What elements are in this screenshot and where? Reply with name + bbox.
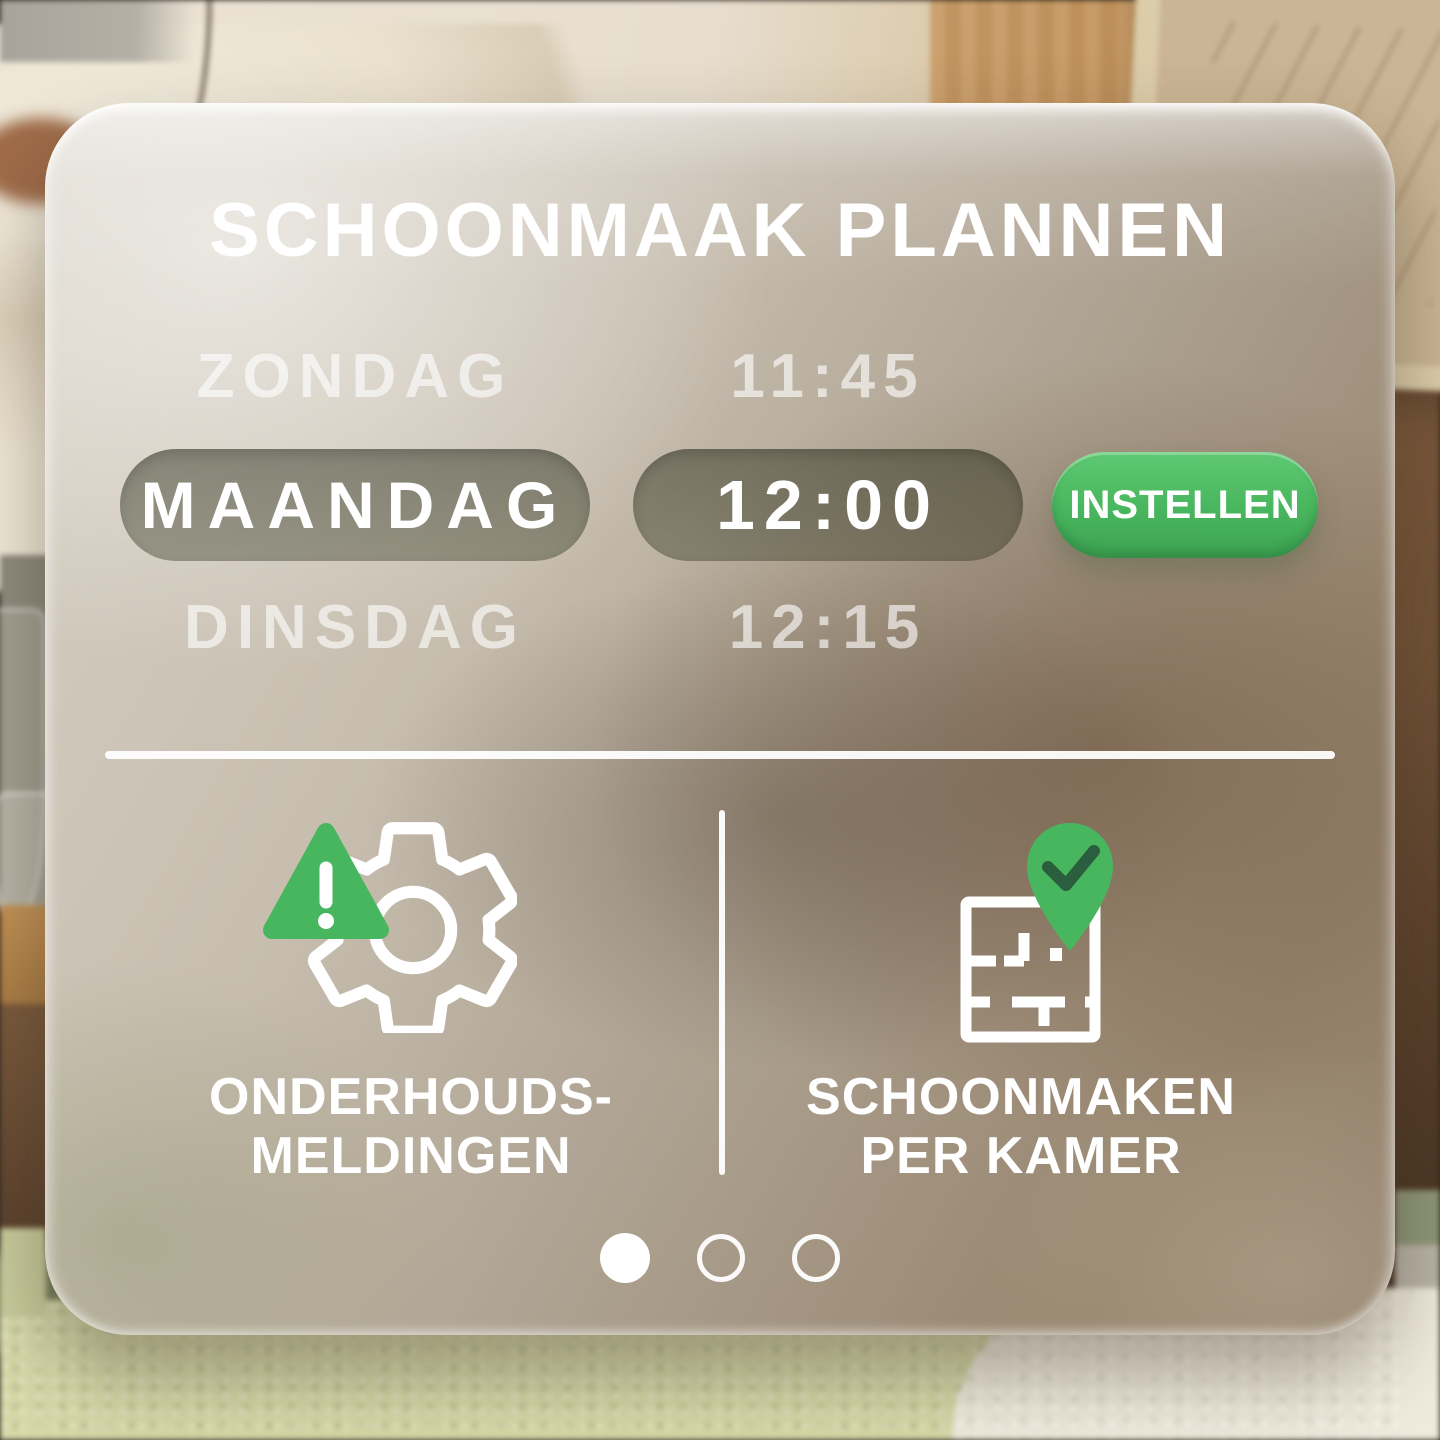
background-rug-edge (0, 1228, 46, 1318)
day-option-dinsdag[interactable]: DINSDAG (120, 571, 590, 683)
pagination-dots (45, 1233, 1395, 1283)
feature-card-maintenance[interactable]: ONDERHOUDS- MELDINGEN (131, 810, 691, 1230)
time-option-1215[interactable]: 12:15 (633, 571, 1023, 683)
feature-label-room-cleaning: SCHOONMAKEN PER KAMER (741, 1068, 1301, 1186)
set-schedule-button[interactable]: INSTELLEN (1052, 452, 1318, 558)
time-option-1145[interactable]: 11:45 (633, 320, 1023, 432)
feature-label-maintenance: ONDERHOUDS- MELDINGEN (131, 1068, 691, 1186)
feature-card-room-cleaning[interactable]: SCHOONMAKEN PER KAMER (741, 810, 1301, 1230)
floorplan-pin-check-icon (960, 821, 1120, 1046)
feature-label-line1: SCHOONMAKEN (741, 1068, 1301, 1127)
floorplan-mark (1050, 948, 1062, 961)
schedule-panel: SCHOONMAAK PLANNEN ZONDAG 11:45 MAANDAG … (45, 103, 1395, 1335)
day-option-maandag[interactable]: MAANDAG (120, 449, 590, 561)
schedule-row-zondag: ZONDAG 11:45 (120, 320, 1320, 432)
feature-label-line2: PER KAMER (741, 1127, 1301, 1186)
background-shelf (0, 0, 195, 62)
schedule-row-maandag-selected: MAANDAG 12:00 INSTELLEN (120, 449, 1320, 561)
vertical-divider (719, 810, 725, 1175)
page-dot[interactable] (792, 1234, 840, 1282)
feature-label-line1: ONDERHOUDS- (131, 1068, 691, 1127)
time-option-1200[interactable]: 12:00 (633, 449, 1023, 561)
warning-triangle-icon (272, 832, 380, 930)
day-option-zondag[interactable]: ZONDAG (120, 320, 590, 432)
alert-gear-icon (262, 818, 517, 1033)
page-dot[interactable] (697, 1234, 745, 1282)
background-rug-strip-green (1395, 1190, 1440, 1250)
feature-label-line2: MELDINGEN (131, 1127, 691, 1186)
screenshot-scene: SCHOONMAAK PLANNEN ZONDAG 11:45 MAANDAG … (0, 0, 1440, 1440)
page-dot[interactable] (600, 1233, 650, 1283)
background-rug-cream-edge (1398, 1296, 1440, 1440)
page-title: SCHOONMAAK PLANNEN (45, 186, 1395, 276)
horizontal-divider (105, 751, 1335, 759)
schedule-row-dinsdag: DINSDAG 12:15 (120, 571, 1320, 683)
